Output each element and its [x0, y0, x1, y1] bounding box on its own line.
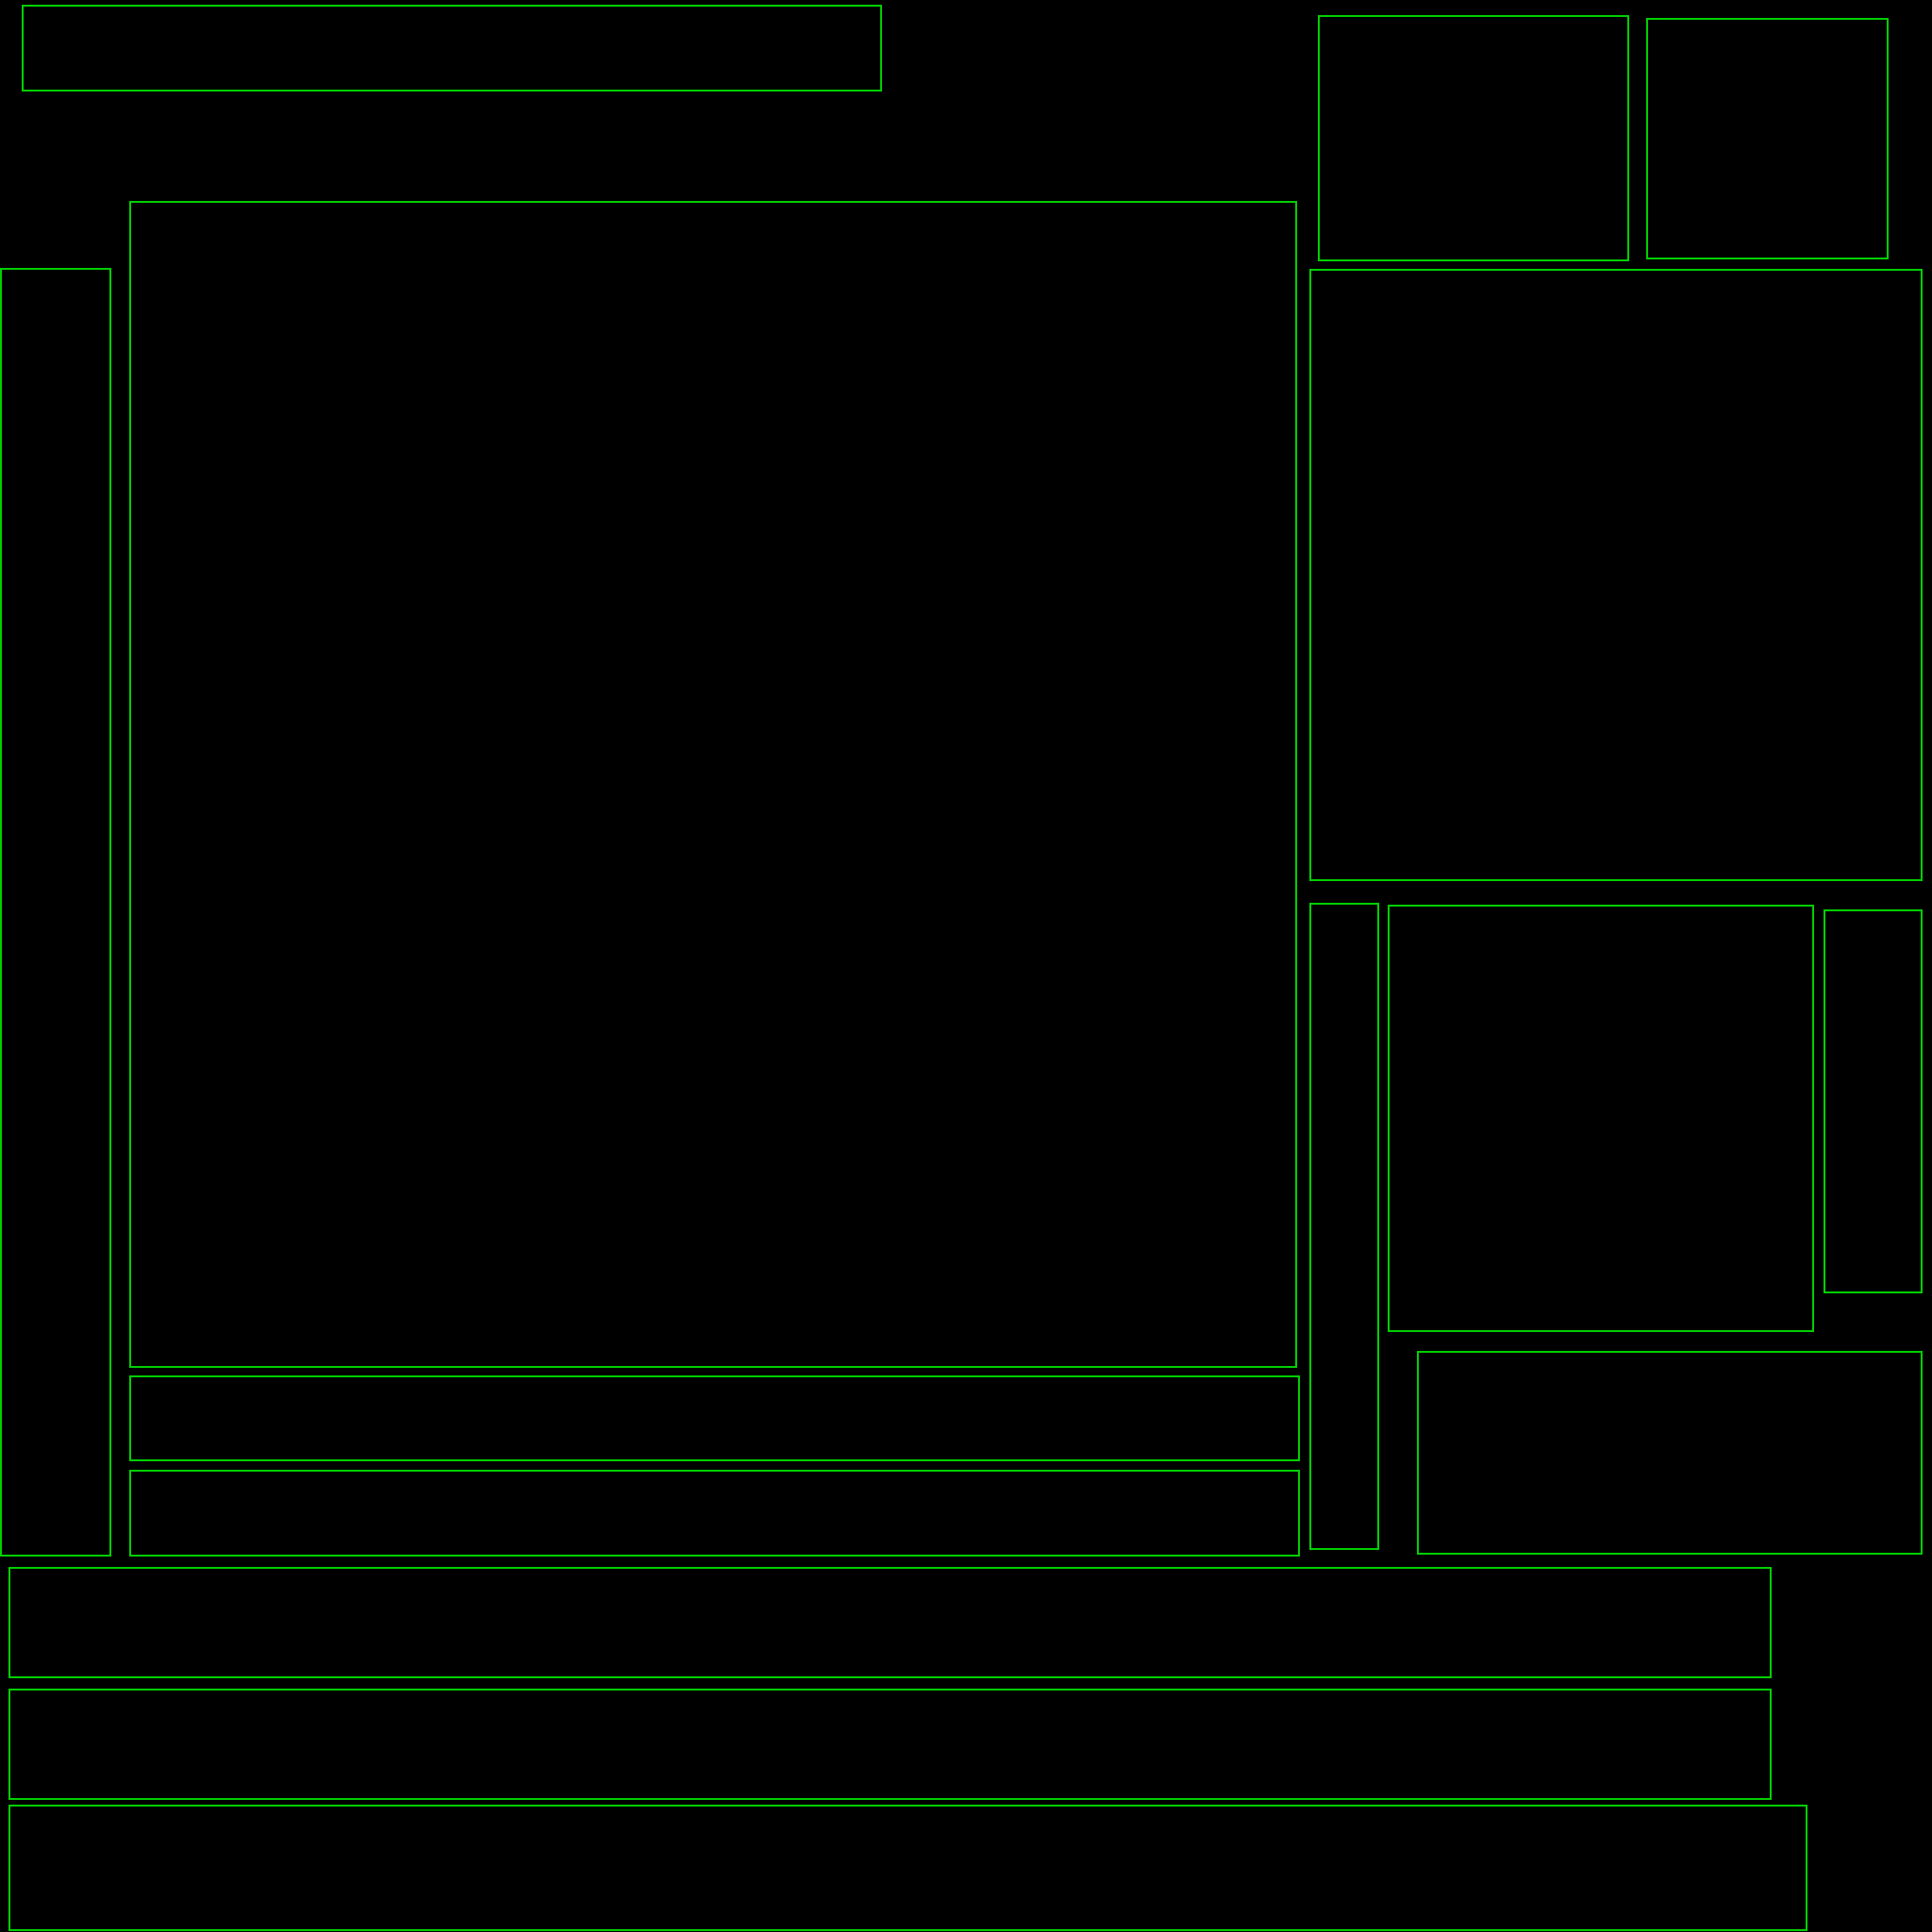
right-lower-box — [1417, 1351, 1923, 1555]
bounding-box-overlay-canvas — [0, 0, 1932, 1932]
right-narrow-box — [1824, 909, 1923, 1293]
bottom-bar-1 — [8, 1567, 1772, 1678]
top-left-bar — [22, 5, 882, 92]
content-row-b — [129, 1470, 1300, 1557]
main-panel — [129, 201, 1297, 1368]
top-right-box-b — [1646, 18, 1889, 259]
right-mid-box — [1388, 905, 1814, 1332]
right-panel — [1309, 269, 1923, 881]
vertical-strip — [1309, 903, 1379, 1550]
content-row-a — [129, 1375, 1300, 1461]
left-sidebar — [0, 268, 111, 1557]
bottom-bar-3 — [8, 1805, 1807, 1931]
top-right-box-a — [1318, 15, 1629, 261]
bottom-bar-2 — [8, 1689, 1772, 1800]
